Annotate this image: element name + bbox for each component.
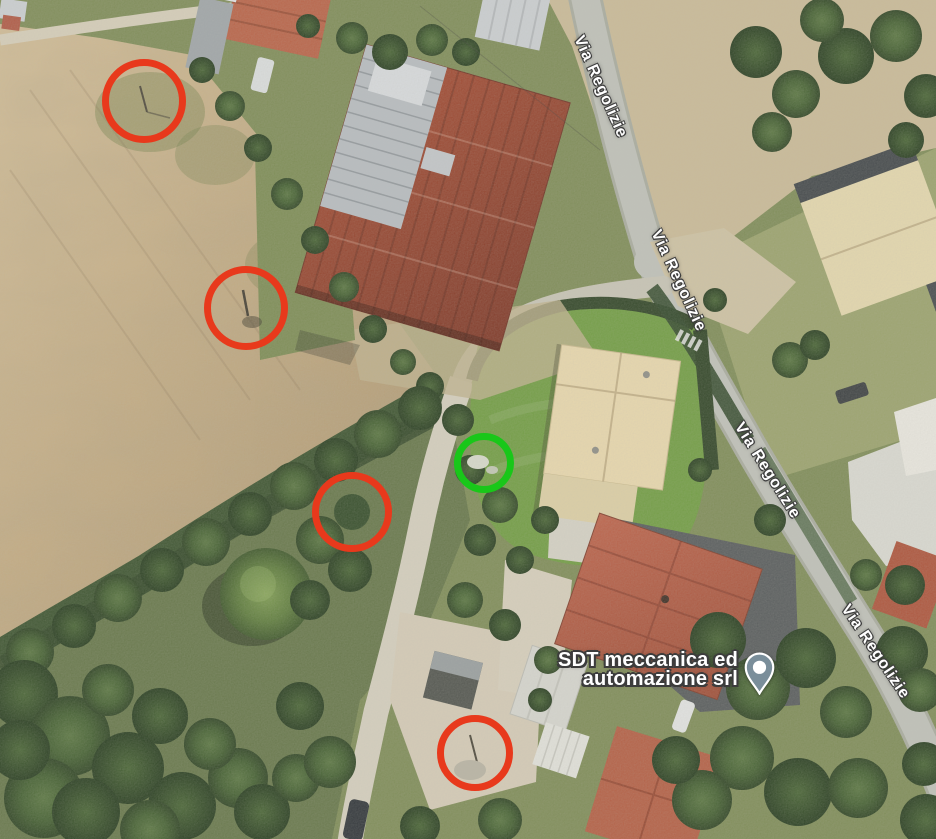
noise-overlay — [0, 0, 936, 839]
satellite-imagery — [0, 0, 936, 839]
business-pin-icon[interactable] — [743, 652, 776, 695]
poi-name: SDT meccanica ed automazione srl — [558, 651, 738, 689]
satellite-map[interactable]: Via RegolizieVia RegolizieVia RegolizieV… — [0, 0, 936, 839]
poi-name-line2: automazione srl — [558, 670, 738, 689]
poi-sdt-meccanica[interactable]: SDT meccanica ed automazione srl — [558, 651, 776, 695]
